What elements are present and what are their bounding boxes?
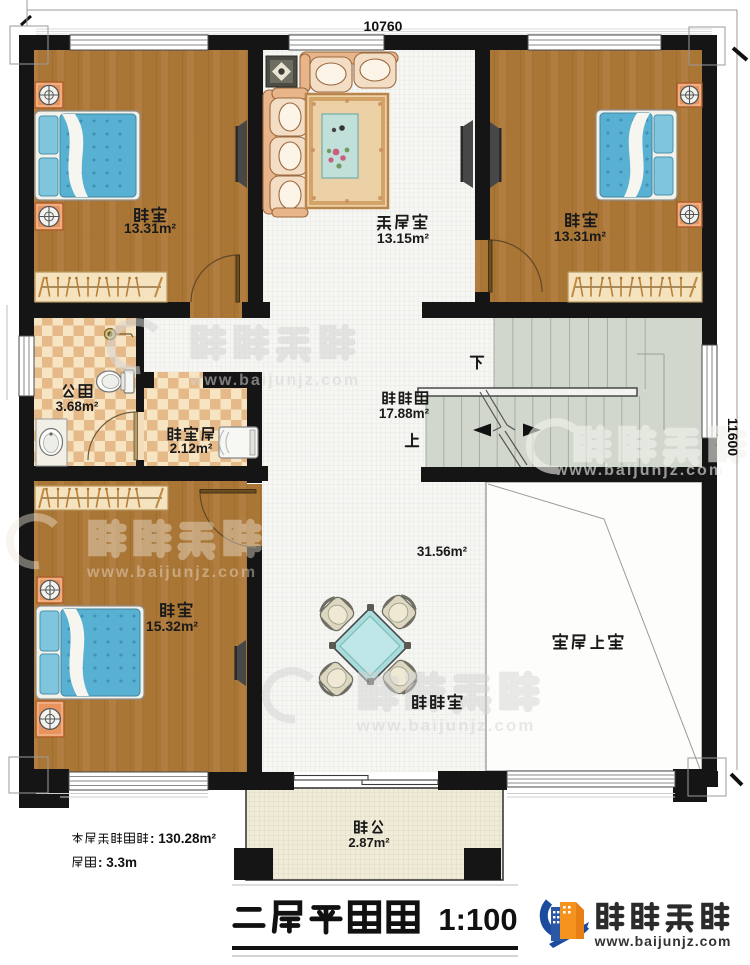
svg-text:1:100: 1:100 <box>438 902 517 937</box>
svg-text:: 3.3m: : 3.3m <box>98 855 137 870</box>
svg-text:www.baijunjz.com: www.baijunjz.com <box>356 716 536 735</box>
svg-text:www.baijunjz.com: www.baijunjz.com <box>86 564 257 581</box>
svg-text:13.15m²: 13.15m² <box>377 230 429 246</box>
svg-text:11600: 11600 <box>725 418 741 456</box>
svg-text:2.12m²: 2.12m² <box>170 441 213 456</box>
svg-text:www.baijunjz.com: www.baijunjz.com <box>594 933 732 949</box>
svg-text:www.baijunjz.com: www.baijunjz.com <box>554 462 725 479</box>
svg-text:2.87m²: 2.87m² <box>348 835 390 850</box>
svg-text:15.32m²: 15.32m² <box>146 618 198 634</box>
svg-text:10760: 10760 <box>364 18 403 34</box>
svg-text:: 130.28m²: : 130.28m² <box>150 831 217 846</box>
svg-text:17.88m²: 17.88m² <box>379 406 430 421</box>
svg-text:31.56m²: 31.56m² <box>417 544 468 559</box>
svg-text:www.baijunjz.com: www.baijunjz.com <box>189 372 360 389</box>
svg-text:13.31m²: 13.31m² <box>124 220 176 236</box>
svg-text:13.31m²: 13.31m² <box>554 228 606 244</box>
svg-text:3.68m²: 3.68m² <box>56 399 99 414</box>
